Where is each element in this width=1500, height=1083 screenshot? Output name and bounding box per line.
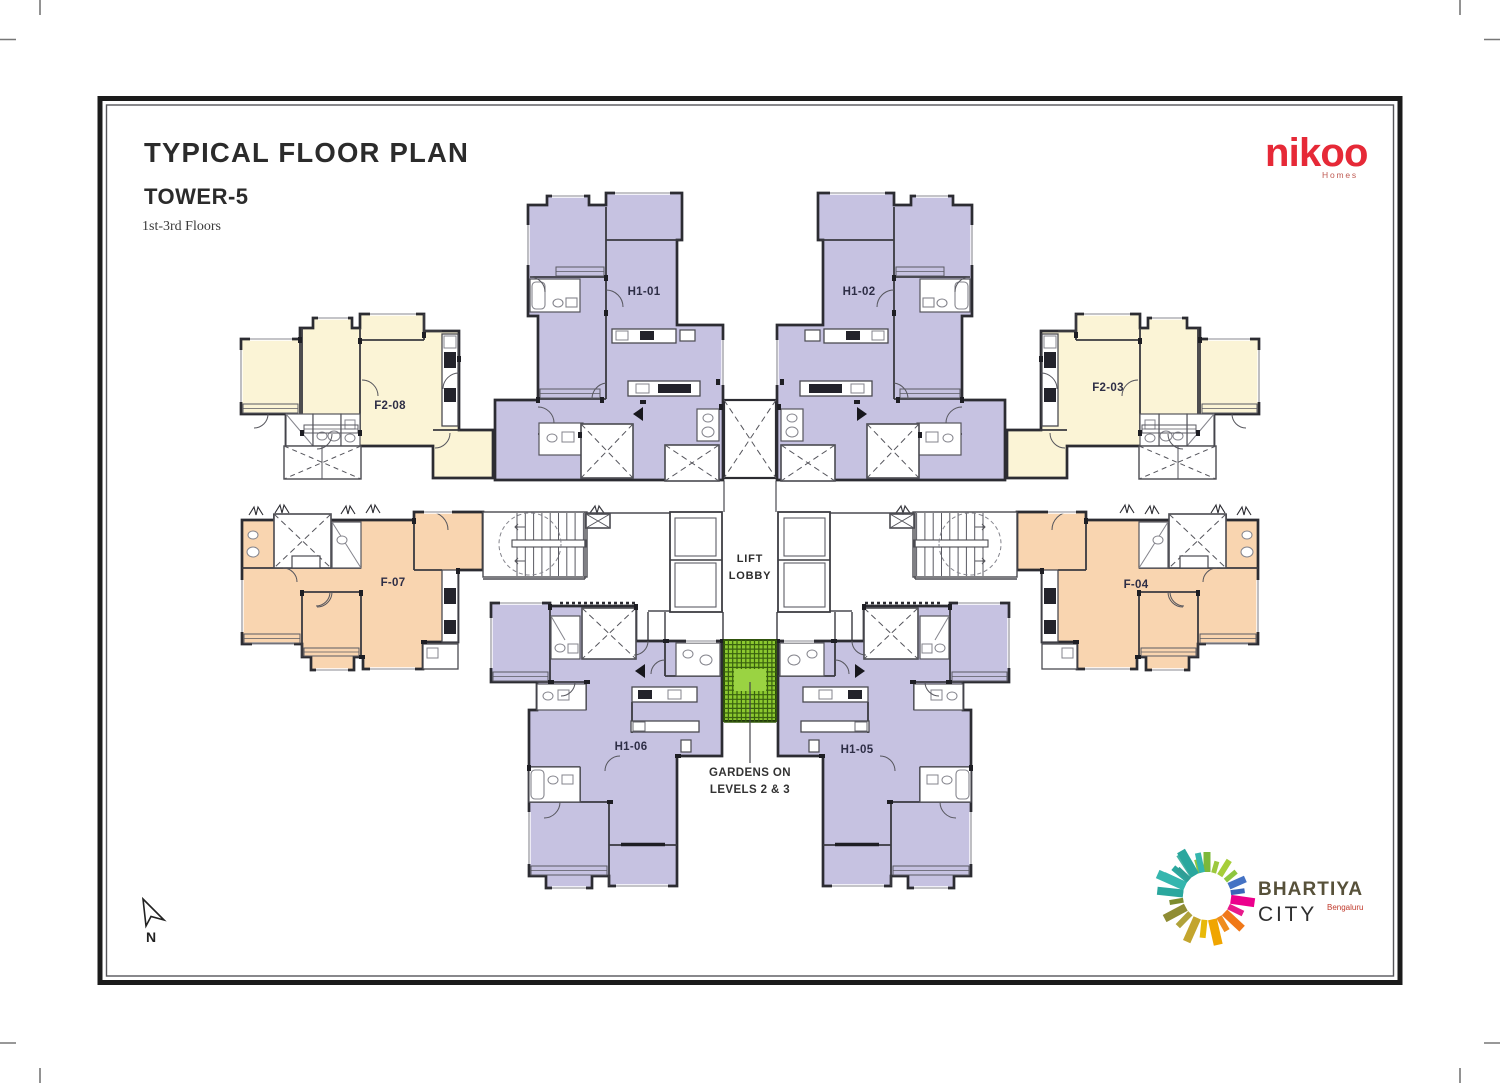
svg-text:F2-08: F2-08: [374, 400, 406, 412]
svg-text:Bengaluru: Bengaluru: [1327, 903, 1363, 912]
svg-text:TOWER-5: TOWER-5: [144, 184, 249, 209]
svg-text:Homes: Homes: [1322, 170, 1358, 180]
svg-text:F-04: F-04: [1124, 579, 1149, 591]
svg-text:H1-05: H1-05: [841, 744, 874, 756]
svg-text:TYPICAL FLOOR PLAN: TYPICAL FLOOR PLAN: [144, 137, 469, 168]
svg-text:LEVELS 2 & 3: LEVELS 2 & 3: [710, 784, 790, 796]
svg-text:F2-03: F2-03: [1092, 382, 1124, 394]
svg-text:LIFT: LIFT: [737, 553, 763, 565]
svg-text:H1-06: H1-06: [615, 741, 648, 753]
svg-text:nikoo: nikoo: [1265, 131, 1368, 175]
svg-text:N: N: [146, 929, 156, 945]
svg-text:LOBBY: LOBBY: [729, 570, 772, 582]
svg-text:H1-02: H1-02: [843, 286, 876, 298]
svg-text:GARDENS ON: GARDENS ON: [709, 767, 791, 779]
svg-text:BHARTIYA: BHARTIYA: [1258, 879, 1363, 900]
svg-text:H1-01: H1-01: [628, 286, 661, 298]
svg-text:CITY: CITY: [1258, 903, 1317, 926]
svg-text:1st-3rd Floors: 1st-3rd Floors: [142, 219, 221, 234]
svg-text:F-07: F-07: [381, 577, 406, 589]
